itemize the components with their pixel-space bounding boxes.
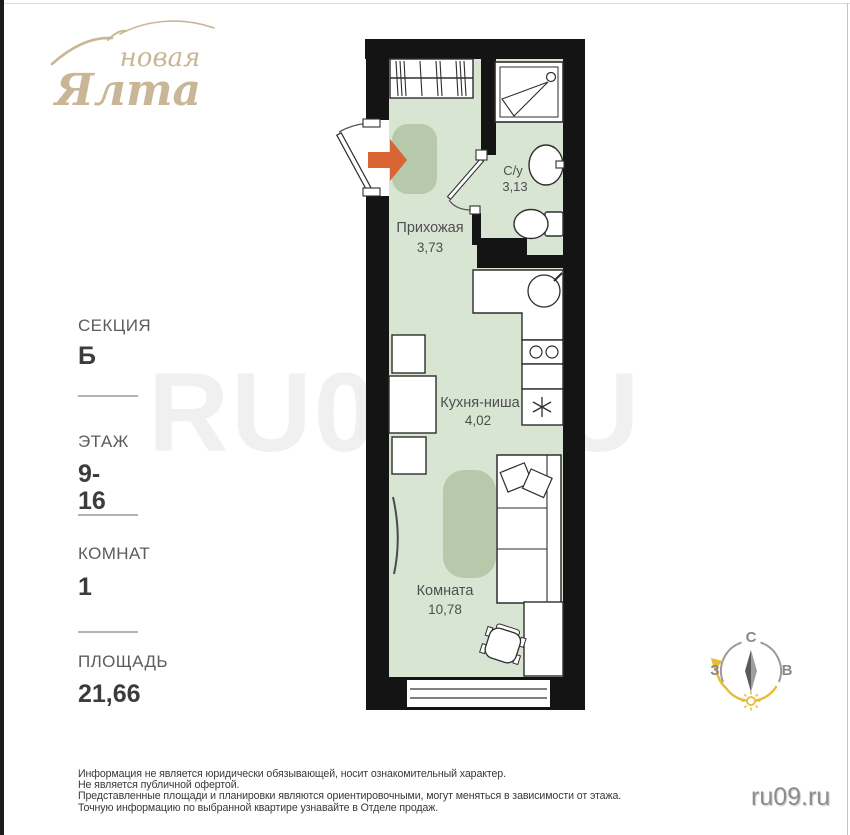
section-label: СЕКЦИЯ (78, 316, 151, 336)
page-right-border (847, 3, 848, 835)
sink-icon (529, 145, 564, 185)
site-watermark: ru09.ru (751, 783, 830, 812)
hallway-label: Прихожая (396, 220, 463, 236)
hallway-area: 3,73 (417, 240, 443, 255)
floor-value-2: 16 (78, 488, 106, 514)
cooktop-icon (522, 340, 563, 364)
divider (78, 631, 138, 633)
window-icon (407, 680, 550, 707)
shower-icon (495, 62, 563, 122)
disclaimer-line: Представленные площади и планировки явля… (78, 791, 621, 802)
divider (78, 395, 138, 397)
toilet-icon (514, 210, 563, 239)
floor-value-1: 9- (78, 461, 100, 487)
bed-icon (497, 455, 561, 603)
logo-line2: Ялта (52, 65, 201, 115)
rooms-label: КОМНАТ (78, 544, 150, 564)
desk-icon (524, 602, 563, 676)
wardrobe-icon (390, 59, 473, 98)
area-value: 21,66 (78, 681, 141, 707)
area-label: ПЛОЩАДЬ (78, 652, 168, 672)
kitchen-label: Кухня-ниша (440, 395, 520, 411)
compass: С З В (700, 612, 804, 716)
section-value: Б (78, 343, 96, 369)
sun-icon (742, 692, 761, 711)
room-rug (443, 470, 496, 578)
disclaimer-line: Точную информацию по выбранной квартире … (78, 803, 621, 814)
page-top-border (4, 3, 850, 4)
bathroom-label: С/у (503, 163, 523, 178)
page-left-edge (0, 0, 4, 835)
compass-east: В (782, 662, 793, 679)
rooms-value: 1 (78, 574, 92, 600)
floor-label: ЭТАЖ (78, 432, 129, 452)
fridge-icon (522, 389, 563, 425)
compass-north: С (746, 629, 757, 646)
counter-section (522, 364, 563, 389)
bathroom-area: 3,13 (502, 179, 527, 194)
compass-needle-icon (745, 650, 757, 692)
divider (78, 514, 138, 516)
floor-plan: Прихожая 3,73 С/у 3,13 Кухня-ниша 4,02 К… (330, 35, 590, 715)
brand-logo: новая Ялта (46, 10, 236, 115)
room-area: 10,78 (428, 602, 462, 617)
disclaimer-block: Информация не является юридически обязыв… (78, 769, 621, 814)
kitchen-area: 4,02 (465, 413, 491, 428)
room-label: Комната (417, 583, 475, 599)
compass-west: З (710, 662, 719, 679)
